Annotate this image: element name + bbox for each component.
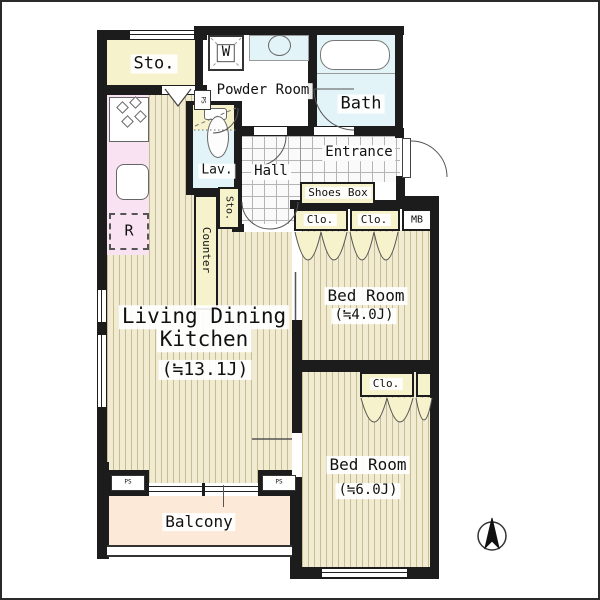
floor-plan: Sto. Powder Room Bath W Entrance Hall La…	[0, 0, 600, 600]
label-hall: Hall	[251, 164, 291, 180]
label-pipe-space-left: PS	[124, 480, 131, 487]
label-storage-small: Sto.	[224, 194, 235, 222]
label-washer: W	[217, 44, 235, 62]
label-meter-box: MB	[410, 214, 424, 225]
label-powder-room: Powder Room	[214, 83, 313, 99]
label-bedroom1-size: (≒4.0J)	[331, 308, 396, 324]
label-lavatory: Lav.	[198, 164, 235, 179]
entrance-door-arc	[411, 141, 447, 177]
label-entrance: Entrance	[322, 145, 395, 161]
lav-door-arc	[213, 108, 238, 133]
label-pipe-space-right: PS	[275, 480, 282, 487]
label-storage-top: Sto.	[131, 54, 178, 73]
label-closet-1: Clo.	[304, 214, 337, 226]
label-bedroom1: Bed Room	[324, 287, 407, 305]
label-ldk-line1: Living Dining	[119, 305, 289, 329]
label-ldk-line2: Kitchen	[157, 328, 252, 352]
label-bedroom2-size: (≒6.0J)	[335, 483, 400, 499]
lav-dashed-line	[195, 108, 236, 126]
label-closet-3: Clo.	[370, 378, 403, 390]
label-refrigerator: R	[121, 223, 136, 240]
label-balcony: Balcony	[162, 513, 235, 531]
closet-door-swags-bedroom1	[295, 232, 398, 260]
storage-door-symbol	[165, 89, 191, 106]
label-ldk-size: (≒13.1J)	[159, 360, 252, 380]
label-bath: Bath	[338, 94, 385, 113]
label-pipe-space-top: PS	[199, 96, 206, 103]
label-counter: Counter	[200, 225, 212, 275]
hall-door-arcs	[242, 202, 298, 229]
powder-door-arc	[256, 136, 286, 166]
compass-icon	[478, 518, 506, 550]
closet-door-swags-bedroom2	[361, 398, 432, 422]
label-closet-2: Clo.	[358, 214, 391, 226]
label-bedroom2: Bed Room	[326, 456, 409, 474]
label-shoes-box: Shoes Box	[305, 187, 371, 199]
